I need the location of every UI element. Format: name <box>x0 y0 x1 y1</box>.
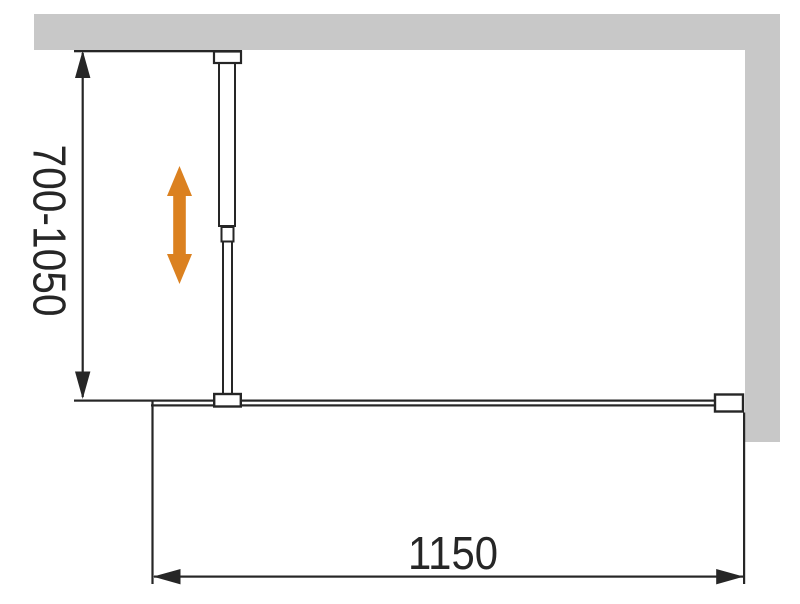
svg-text:1150: 1150 <box>408 527 498 579</box>
svg-text:700-1050: 700-1050 <box>24 145 76 317</box>
